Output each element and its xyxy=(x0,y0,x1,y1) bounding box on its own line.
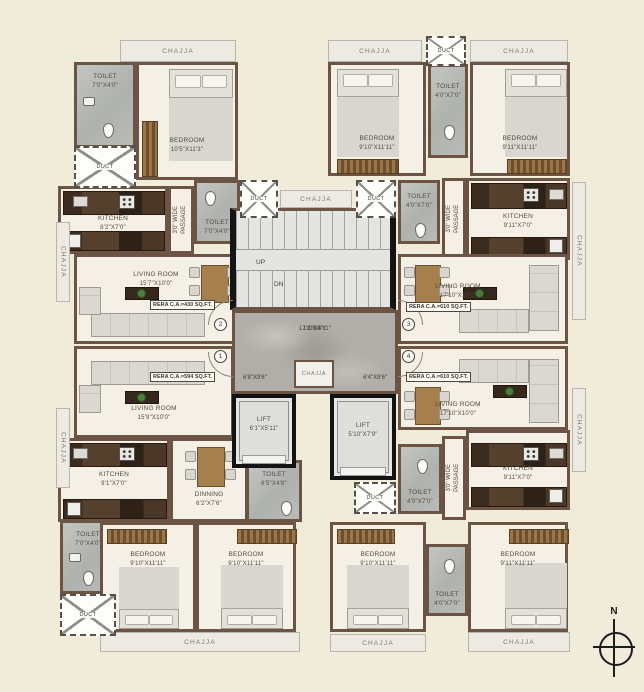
entrance-number-3: 3 xyxy=(402,318,415,331)
wardrobe xyxy=(337,159,399,174)
rera-text: RERA C.A.=430 SQ.FT. xyxy=(153,302,212,308)
br-bedroom-1: BEDROOM9'10"X11'11" xyxy=(330,522,426,632)
lift-car xyxy=(337,401,389,473)
pillow xyxy=(227,615,252,625)
chajja-strip-core-top: CHAJJA xyxy=(280,190,352,208)
door-number: 2 xyxy=(219,321,223,328)
armchair xyxy=(79,287,101,315)
washbasin xyxy=(69,553,81,562)
br-bedroom-2: BEDROOM9'11"X11'11" xyxy=(468,522,568,632)
sofa xyxy=(529,359,559,423)
duct-label: DUCT xyxy=(79,612,98,618)
br-passage xyxy=(442,436,466,520)
door-number: 4 xyxy=(407,353,411,360)
bl-bedroom-2: BEDROOM9'10"X11'11" xyxy=(196,522,296,632)
pillow xyxy=(252,615,277,625)
tl-toilet-top: TOILET7'0"X4'0" xyxy=(74,62,136,148)
chair xyxy=(189,285,200,296)
pillow xyxy=(202,75,228,89)
room-dim: 6'2"X7'6" xyxy=(196,500,222,508)
room-label: TOILET xyxy=(407,193,431,202)
blanket xyxy=(169,97,233,161)
duct-label: DUCT xyxy=(366,495,385,501)
chajja-label: CHAJJA xyxy=(503,639,535,646)
wardrobe xyxy=(107,529,167,544)
room-dim: 4'0"X7'0" xyxy=(434,600,460,608)
fridge xyxy=(549,489,563,503)
pillow xyxy=(149,615,173,625)
chair xyxy=(439,409,450,420)
lift-door xyxy=(242,455,286,464)
dining-table xyxy=(415,265,441,303)
room-dim: 7'0"X4'0" xyxy=(204,228,230,236)
room-label: TOILET xyxy=(435,591,459,600)
tl-duct: DUCT xyxy=(74,146,136,188)
door-number: 3 xyxy=(407,321,411,328)
wardrobe xyxy=(507,159,567,174)
bed xyxy=(169,69,233,161)
duct-label: DUCT xyxy=(367,196,386,202)
toilet-wc xyxy=(83,571,94,586)
armchair xyxy=(79,385,101,413)
room-label: KITCHEN xyxy=(99,471,129,480)
room-label: BEDROOM xyxy=(501,551,536,560)
sofa xyxy=(529,265,559,331)
blanket xyxy=(505,96,567,157)
toilet-wc xyxy=(444,125,455,140)
chajja-strip-bottom-mid: CHAJJA xyxy=(330,634,426,652)
br-living-room: LIVING ROOM17'10"X10'0" xyxy=(398,346,568,430)
wardrobe xyxy=(237,529,297,544)
duct-label: DUCT xyxy=(96,164,115,170)
entrance-number-2: 2 xyxy=(214,318,227,331)
toilet-wc xyxy=(281,501,292,516)
chair xyxy=(225,469,236,480)
room-dim: 9'11"X7'0" xyxy=(504,474,533,482)
plant xyxy=(475,289,484,298)
tr-passage xyxy=(442,178,466,260)
lift-door xyxy=(340,467,386,476)
stairs-down-label: DN xyxy=(274,281,283,288)
tl-living-room: LIVING ROOM15'7"X10'0" xyxy=(74,254,238,344)
toilet-wc xyxy=(444,559,455,574)
tr-duct-stairs: DUCT xyxy=(356,180,396,218)
chajja-lobby-niche: CHAJJA xyxy=(294,360,334,388)
chajja-label: CHAJJA xyxy=(300,196,332,203)
chajja-label: CHAJJA xyxy=(503,48,535,55)
bed xyxy=(221,565,283,629)
chajja-strip-top-mid: CHAJJA xyxy=(328,40,422,62)
chajja-label: CHAJJA xyxy=(576,235,583,267)
room-label: TOILET xyxy=(408,489,432,498)
lobby-left-dim: 6'8"X9'6" xyxy=(243,375,267,381)
pillow xyxy=(175,75,201,89)
room-dim: 4'0"X7'0" xyxy=(406,202,432,210)
room-label: KITCHEN xyxy=(98,215,128,224)
blanket xyxy=(337,96,399,157)
tr-toilet-top: TOILET4'0"X7'0" xyxy=(428,64,468,158)
duct-label: DUCT xyxy=(250,196,269,202)
room-dim: 6'5"X4'8" xyxy=(261,480,287,488)
wardrobe xyxy=(509,529,569,544)
pillow xyxy=(378,615,403,625)
room-dim: 7'0"X4'0" xyxy=(75,540,101,548)
chajja-label: CHAJJA xyxy=(576,414,583,446)
sink xyxy=(73,196,88,207)
chajja-label: CHAJJA xyxy=(60,246,67,278)
chajja-label: CHAJJA xyxy=(362,640,394,647)
rera-text: RERA C.A.=610 SQ.FT. xyxy=(409,374,468,380)
compass: N xyxy=(592,606,636,680)
pillow xyxy=(536,615,561,625)
bed xyxy=(505,69,567,157)
room-label: BEDROOM xyxy=(131,551,166,560)
pillow xyxy=(125,615,149,625)
tl-duct-stairs: DUCT xyxy=(240,180,278,218)
room-dim: 9'1"X7'0" xyxy=(101,480,127,488)
pillow xyxy=(511,74,536,87)
tl-kitchen: KITCHEN8'2"X7'0" xyxy=(58,186,168,254)
br-kitchen: KITCHEN9'11"X7'0" xyxy=(466,430,570,510)
pillow xyxy=(343,74,368,87)
dining-table xyxy=(197,447,225,487)
toilet-wc xyxy=(205,191,216,206)
chair xyxy=(185,451,196,462)
stove xyxy=(119,447,135,461)
room-label: BEDROOM xyxy=(229,551,264,560)
br-toilet-lift: TOILET4'0"X7'0" xyxy=(398,444,442,514)
blanket xyxy=(221,565,283,609)
chajja-strip-bottom-left: CHAJJA xyxy=(100,632,300,652)
washbasin xyxy=(83,97,95,106)
bl-toilet-lift: TOILET6'5"X4'8" xyxy=(246,460,302,522)
compass-circle xyxy=(599,632,633,666)
chair xyxy=(189,267,200,278)
tr-kitchen: KITCHEN9'11"X7'0" xyxy=(466,178,570,260)
room-dim: 9'11"X7'0" xyxy=(504,222,533,230)
plant xyxy=(137,289,146,298)
room-label: TOILET xyxy=(205,219,229,228)
room-dim: 4'0"X7'0" xyxy=(435,92,461,100)
stairs-up-label: UP xyxy=(256,259,265,266)
tl-bedroom: BEDROOM10'5"X11'3" xyxy=(136,62,238,180)
entrance-number-1: 1 xyxy=(214,350,227,363)
room-label: LIVING ROOM xyxy=(133,271,179,280)
bed xyxy=(505,563,567,629)
tr-living-room: LIVING ROOM17'10"X10'0" xyxy=(398,254,568,344)
lobby-label: LOBBY xyxy=(304,325,327,334)
chair xyxy=(404,267,415,278)
lobby-right-dim: 6'4"X9'6" xyxy=(363,375,387,381)
room-label: TOILET xyxy=(436,83,460,92)
bl-kitchen: KITCHEN9'1"X7'0" xyxy=(58,438,170,522)
chajja-strip-right-upper: CHAJJA xyxy=(572,182,586,320)
pillow xyxy=(368,74,393,87)
chair xyxy=(439,285,450,296)
rera-text: RERA C.A.=594 SQ.FT. xyxy=(153,374,212,380)
tr-bedroom-1: BEDROOM9'10"X11'11" xyxy=(328,62,426,176)
sofa xyxy=(459,309,529,333)
toilet-wc xyxy=(103,123,114,138)
tr-bedroom-2: BEDROOM9'11"X11'11" xyxy=(470,62,570,176)
fridge xyxy=(549,239,563,253)
chair xyxy=(404,409,415,420)
dining-table xyxy=(415,387,441,425)
lift-car xyxy=(239,401,289,461)
room-label: TOILET xyxy=(76,531,100,540)
blanket xyxy=(119,567,179,610)
br-rera-label: RERA C.A.=610 SQ.FT. xyxy=(406,372,471,382)
door-number: 1 xyxy=(219,353,223,360)
sink xyxy=(549,189,564,200)
chajja-strip-top-right: CHAJJA xyxy=(470,40,568,62)
room-label: KITCHEN xyxy=(503,213,533,222)
lift-left: LIFT6'1"X5'11" xyxy=(232,394,296,468)
chajja-label: CHAJJA xyxy=(359,48,391,55)
room-label: DINNING xyxy=(195,491,224,500)
staircase: UP DN xyxy=(230,208,396,310)
chajja-label: CHAJJA xyxy=(302,371,326,377)
lift-right: LIFT5'10"X7'9" xyxy=(330,394,396,480)
toilet-wc xyxy=(417,459,428,474)
room-label: LIVING ROOM xyxy=(131,405,177,414)
chajja-strip-bottom-right: CHAJJA xyxy=(468,632,570,652)
tl-rera-label: RERA C.A.=430 SQ.FT. xyxy=(150,300,215,310)
pillow xyxy=(353,615,378,625)
room-label: TOILET xyxy=(262,471,286,480)
room-label: BEDROOM xyxy=(361,551,396,560)
room-dim: 15'9"X10'0" xyxy=(138,414,171,422)
sink xyxy=(549,448,564,459)
dining-table xyxy=(201,265,229,303)
floor-plan: CHAJJA CHAJJA DUCT CHAJJA CHAJJA CHAJJA … xyxy=(0,0,644,692)
tl-passage xyxy=(168,186,194,254)
chajja-strip-top-left: CHAJJA xyxy=(120,40,236,62)
wardrobe xyxy=(337,529,395,544)
blanket xyxy=(347,565,409,609)
fridge xyxy=(67,502,81,516)
room-dim: 7'0"X4'0" xyxy=(92,82,118,90)
duct-label: DUCT xyxy=(437,48,456,54)
wardrobe xyxy=(142,121,158,177)
pillow xyxy=(511,615,536,625)
stove xyxy=(523,188,539,202)
chair xyxy=(439,391,450,402)
entrance-number-4: 4 xyxy=(402,350,415,363)
north-label: N xyxy=(610,606,617,617)
chajja-label: CHAJJA xyxy=(60,432,67,464)
rera-text: RERA C.A.=610 SQ.FT. xyxy=(409,304,468,310)
bed xyxy=(347,565,409,629)
br-duct-lift: DUCT xyxy=(354,482,396,514)
sink xyxy=(73,448,88,459)
chajja-strip-left-lower: CHAJJA xyxy=(56,408,70,488)
bed xyxy=(119,567,179,629)
br-toilet-mid: TOILET4'0"X7'0" xyxy=(426,544,468,616)
chajja-strip-left-upper: CHAJJA xyxy=(56,222,70,302)
stove xyxy=(523,447,539,461)
blanket xyxy=(505,563,567,609)
room-dim: 4'0"X7'0" xyxy=(407,498,433,506)
tr-rera-label: RERA C.A.=610 SQ.FT. xyxy=(406,302,471,312)
sofa xyxy=(91,313,205,337)
bed xyxy=(337,69,399,157)
chair xyxy=(185,469,196,480)
room-label: TOILET xyxy=(93,73,117,82)
chair xyxy=(404,285,415,296)
plant xyxy=(137,393,146,402)
bl-rera-label: RERA C.A.=594 SQ.FT. xyxy=(150,372,215,382)
plant xyxy=(505,387,514,396)
lobby-dim: 17'3"X4'11" xyxy=(299,325,331,333)
toilet-wc xyxy=(415,223,426,238)
bl-duct: DUCT xyxy=(60,594,116,636)
chajja-label: CHAJJA xyxy=(162,48,194,55)
stove xyxy=(119,195,135,209)
chajja-strip-right-lower: CHAJJA xyxy=(572,388,586,472)
pillow xyxy=(536,74,561,87)
chair xyxy=(439,267,450,278)
tr-toilet-passage: TOILET4'0"X7'0" xyxy=(398,180,440,244)
chajja-label: CHAJJA xyxy=(184,639,216,646)
duct-top-right: DUCT xyxy=(426,36,466,66)
chair xyxy=(404,391,415,402)
